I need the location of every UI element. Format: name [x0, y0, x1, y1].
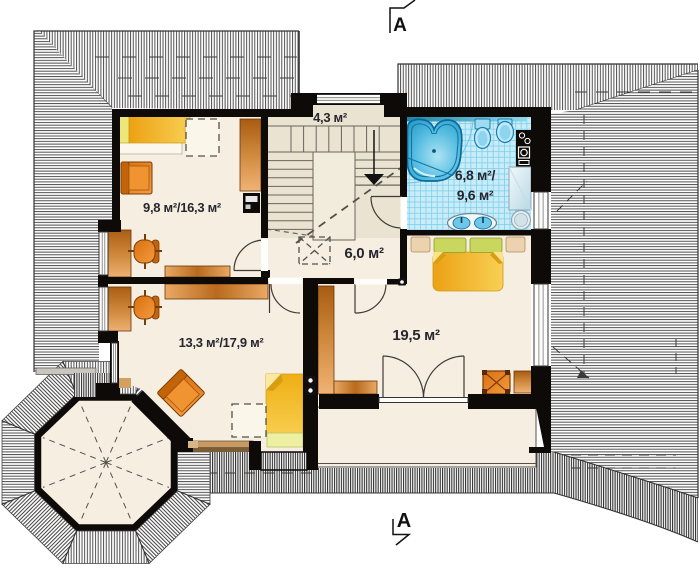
svg-text:4,3 м²: 4,3 м² — [313, 110, 348, 125]
svg-text:A: A — [397, 510, 411, 532]
svg-text:9,8 м²/16,3 м²: 9,8 м²/16,3 м² — [143, 200, 222, 215]
svg-text:13,3 м²/17,9 м²: 13,3 м²/17,9 м² — [179, 335, 265, 350]
svg-text:6,0 м²: 6,0 м² — [344, 245, 384, 262]
svg-text:A: A — [393, 15, 407, 36]
svg-text:6,8 м²/: 6,8 м²/ — [455, 167, 496, 183]
svg-text:19,5 м²: 19,5 м² — [392, 327, 440, 344]
svg-text:9,6 м²: 9,6 м² — [457, 187, 494, 203]
